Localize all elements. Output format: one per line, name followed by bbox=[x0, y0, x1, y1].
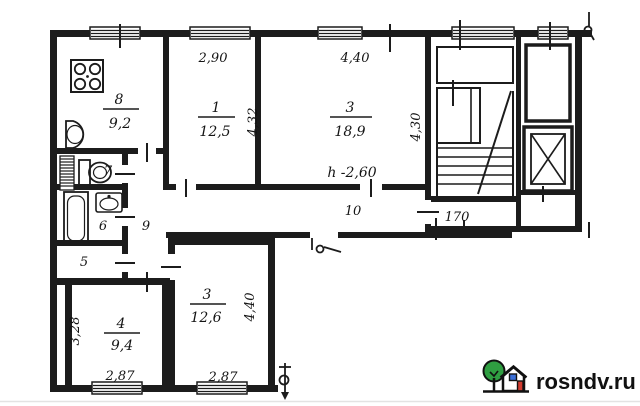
wall-hall-left-1 bbox=[122, 154, 128, 165]
wall-right bbox=[575, 30, 582, 232]
floor-plan-page: 8 9,2 1 12,5 3 18,9 3 12,6 4 9,4 7 6 5 9… bbox=[0, 0, 640, 406]
dim-room3-depth: 4,30 bbox=[409, 113, 424, 143]
riser-corridor bbox=[312, 238, 341, 253]
window-kitchen bbox=[90, 27, 140, 39]
hall-number: 9 bbox=[142, 219, 150, 234]
wall-kitchen-room1 bbox=[163, 37, 169, 190]
window-stairs bbox=[452, 27, 514, 39]
elevator-column bbox=[524, 45, 572, 191]
kitchen-area: 9,2 bbox=[109, 116, 131, 132]
wall-room4-top bbox=[65, 278, 170, 285]
wall-room1-bottom-b bbox=[196, 184, 261, 190]
vent-shaft-hatch bbox=[60, 156, 74, 190]
wall-room3-stairs bbox=[425, 37, 431, 200]
wall-left bbox=[50, 30, 57, 392]
dim-room3-width: 4,40 bbox=[340, 51, 370, 66]
house-logo-icon bbox=[483, 361, 529, 392]
wall-room1-bottom-a bbox=[169, 184, 176, 190]
dim-room3b-depth: 4,40 bbox=[243, 293, 258, 323]
wall-kitchen-bottom-b bbox=[156, 148, 169, 154]
stair-landing bbox=[437, 47, 513, 83]
room4-area: 9,4 bbox=[111, 338, 133, 354]
bath-sink-icon bbox=[96, 193, 122, 212]
wc-number: 7 bbox=[104, 164, 113, 179]
bath-number: 6 bbox=[99, 219, 107, 234]
watermark-site-text: rosndv.ru bbox=[536, 369, 636, 394]
stove-icon bbox=[71, 60, 103, 92]
dim-room3b-width: 2,87 bbox=[208, 370, 239, 385]
lobby-number: 170 bbox=[445, 210, 470, 225]
room3-area: 18,9 bbox=[334, 124, 365, 140]
room3-number: 3 bbox=[346, 100, 355, 116]
kitchen-sink-icon bbox=[66, 121, 83, 148]
wall-room3-stairs-b bbox=[425, 224, 431, 232]
wall-hall-left-3 bbox=[122, 226, 128, 254]
riser-bottom bbox=[279, 363, 291, 400]
stair-diagonal bbox=[478, 91, 511, 194]
wall-hall-left-2 bbox=[122, 183, 128, 208]
staircase bbox=[437, 47, 513, 196]
room3b-area: 12,6 bbox=[190, 310, 221, 326]
kitchen-number: 8 bbox=[115, 92, 124, 108]
wall-room3-bottom-a bbox=[261, 184, 360, 190]
window-room1 bbox=[190, 27, 250, 39]
wall-lobby-top bbox=[431, 196, 516, 202]
room1-number: 1 bbox=[212, 100, 221, 116]
dim-room4-width: 2,87 bbox=[105, 369, 136, 384]
window-shaft bbox=[538, 27, 568, 39]
wall-room3-bottom-b bbox=[382, 184, 431, 190]
wall-corridor-bottom-a bbox=[166, 232, 310, 238]
window-room3 bbox=[318, 27, 362, 39]
wall-corridor-bottom-b bbox=[338, 232, 512, 238]
dim-room4-depth: 3,28 bbox=[68, 317, 83, 346]
room1-area: 12,5 bbox=[199, 124, 230, 140]
room4-number: 4 bbox=[116, 316, 126, 332]
shaft-room bbox=[526, 45, 570, 121]
closet-number: 5 bbox=[80, 255, 88, 270]
room3b-number: 3 bbox=[203, 287, 212, 303]
elevator-icon bbox=[531, 134, 565, 184]
wall-stair-shaft bbox=[516, 37, 521, 226]
wall-room3b-right bbox=[268, 238, 275, 385]
dim-room1-depth: 4,32 bbox=[246, 108, 261, 138]
wall-room3b-left-b bbox=[168, 280, 175, 385]
dim-room1-width: 2,90 bbox=[198, 51, 228, 66]
ceiling-height-note: h -2,60 bbox=[327, 165, 376, 181]
wall-room3b-left-a bbox=[168, 232, 175, 254]
wall-bottom-right bbox=[428, 226, 582, 232]
watermark: rosndv.ru bbox=[483, 361, 636, 395]
wall-room4-right bbox=[162, 285, 169, 385]
bathtub-icon bbox=[64, 192, 88, 245]
corridor-number: 10 bbox=[345, 204, 362, 219]
floor-plan-svg: 8 9,2 1 12,5 3 18,9 3 12,6 4 9,4 7 6 5 9… bbox=[0, 0, 640, 406]
stair-flight-box bbox=[437, 88, 480, 143]
wall-room3b-top bbox=[168, 238, 272, 245]
